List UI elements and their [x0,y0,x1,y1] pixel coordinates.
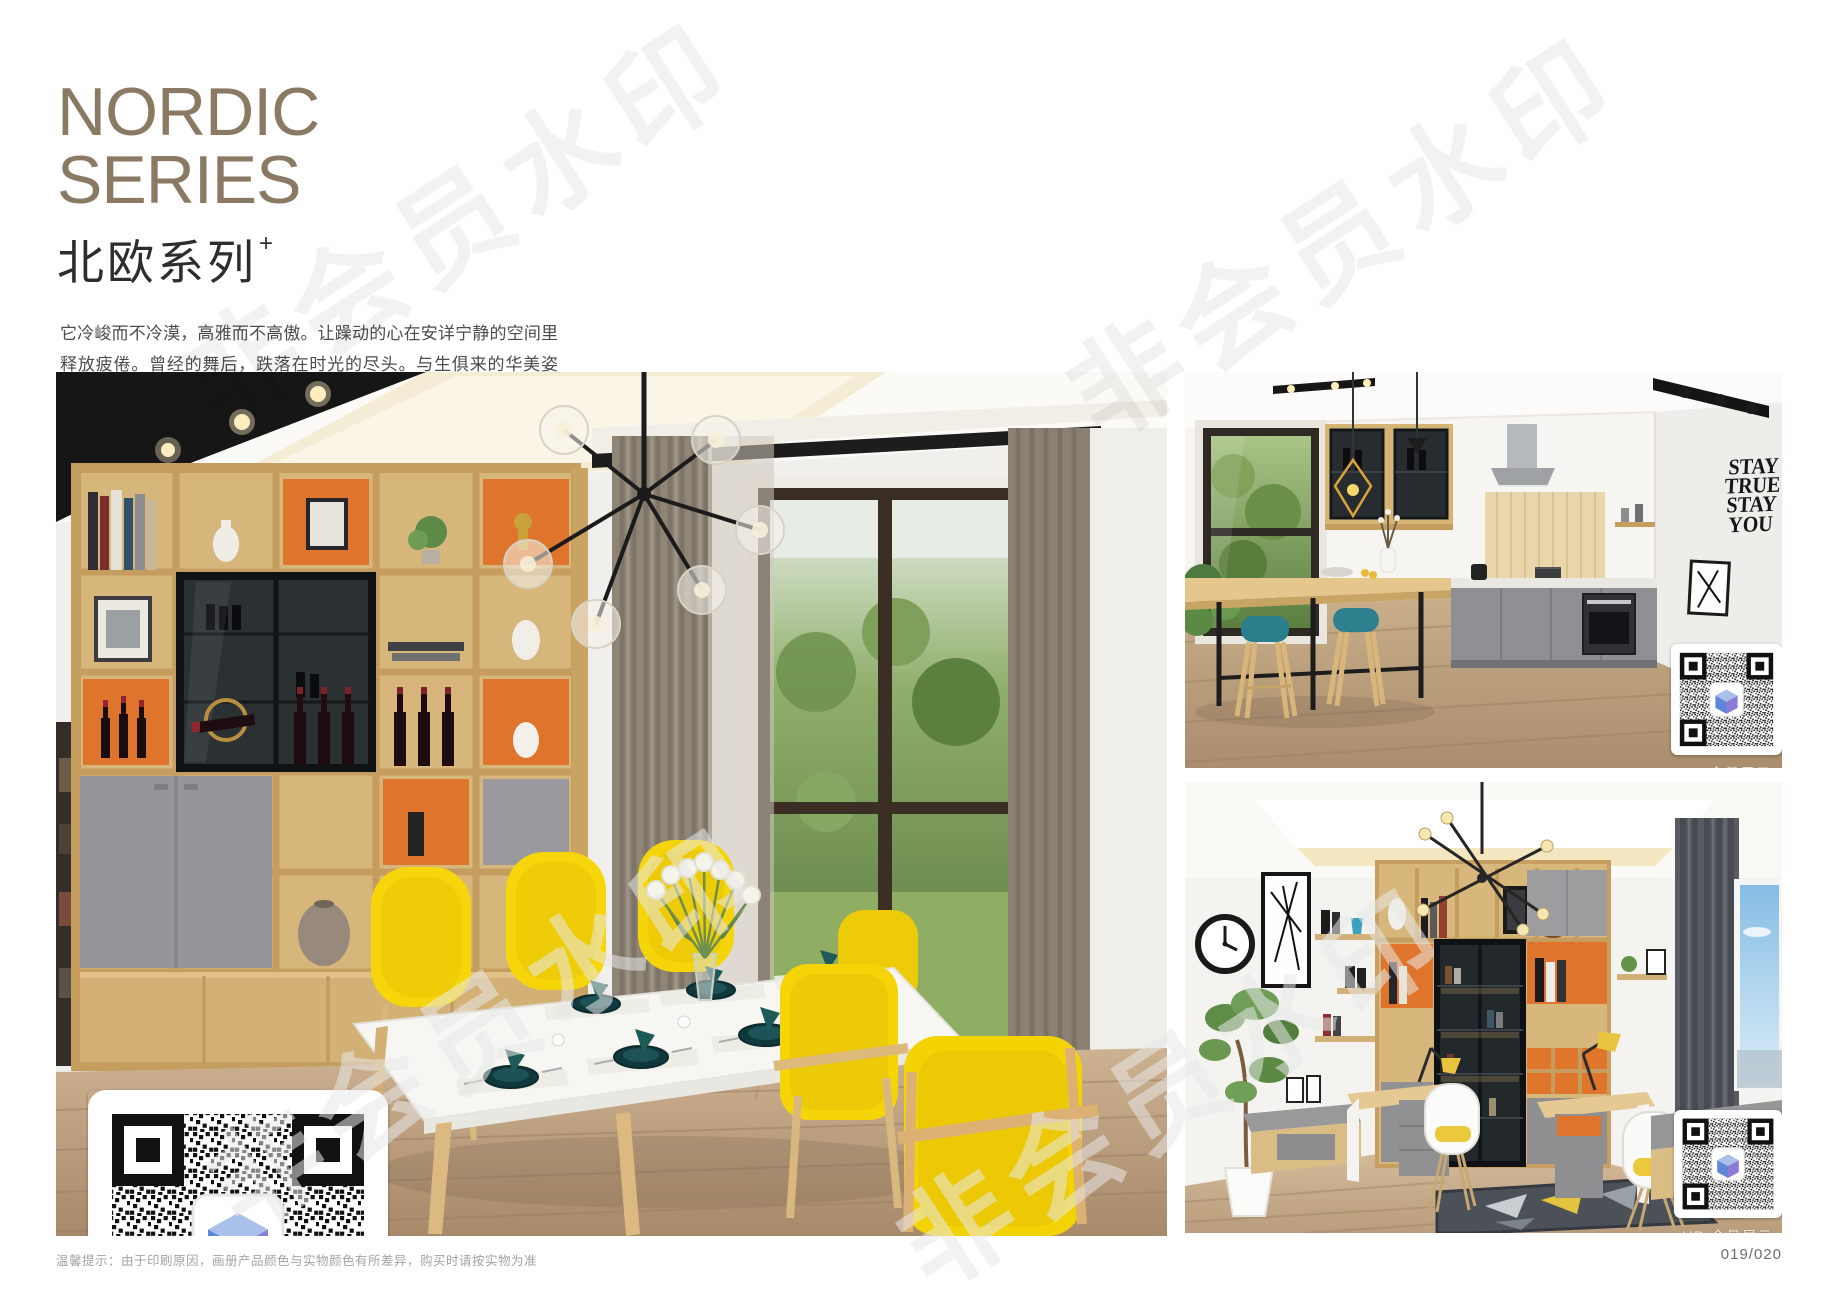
vr-panorama-block: VR 全景展示 [88,1090,388,1236]
subtitle-cn: 北欧系列 [57,236,257,289]
qr-code-icon [1671,644,1782,755]
vr-label: VR 全景展示 [1683,1225,1774,1233]
vr-panorama-block: VR 全景展示 [1671,644,1782,768]
wall-art [1689,561,1730,615]
page-number: 019/020 [1721,1246,1782,1263]
study-room-photo: VR 全景展示 [1185,782,1782,1233]
decal-line: YOU [1719,513,1782,537]
vr-panorama-block: VR 全景展示 [1674,1110,1782,1233]
wall-decal-stay-true: STAY TRUE STAY YOU [1719,457,1782,536]
page-subtitle: 北欧系列+ [57,224,567,293]
qr-code-icon [88,1090,388,1236]
vr-label: VR 全景展示 [1681,762,1772,768]
catalog-page: NORDIC SERIES 北欧系列+ 它冷峻而不冷漠，高雅而不高傲。让躁动的心… [0,0,1836,1307]
kitchen-photo: STAY TRUE STAY YOU VR 全景展示 [1185,372,1782,768]
wall-clock [1198,917,1252,971]
plus-mark: + [259,230,276,257]
wall-art [1263,874,1309,986]
qr-code-icon [1674,1110,1782,1218]
page-title: NORDIC SERIES [57,78,567,214]
dining-room-photo: VR 全景展示 [56,372,1167,1236]
print-disclaimer: 温馨提示：由于印刷原因，画册产品颜色与实物颜色有所差异，购买时请按实物为准 [56,1250,537,1269]
